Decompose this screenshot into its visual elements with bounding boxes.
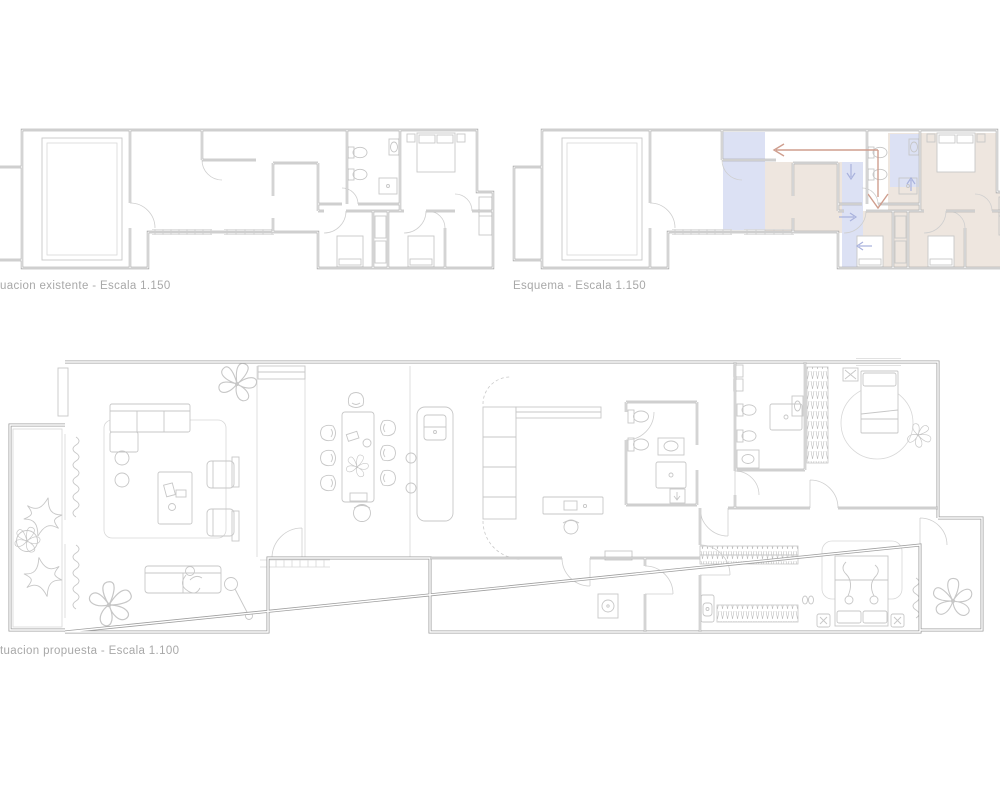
- terrace-set: [15, 437, 79, 609]
- caption-existing: uacion existente - Escala 1.150: [0, 280, 171, 292]
- drawing-sheet: uacion existente - Escala 1.150 Esquema …: [0, 0, 1000, 800]
- caption-esquema: Esquema - Escala 1.150: [513, 280, 646, 292]
- bedroom-2-set: [807, 367, 931, 463]
- bathroom-2: [734, 365, 803, 468]
- zone-tan-middle-rooms: [765, 162, 842, 233]
- wc-fixture: [701, 595, 714, 622]
- dining-table-icon: [342, 412, 374, 502]
- flow-arrow-left: [774, 144, 878, 156]
- dining-set: [321, 393, 396, 522]
- plan-existing-situation: [0, 130, 493, 268]
- curtain-squiggle: [73, 437, 79, 517]
- radiator: [232, 511, 239, 541]
- flow-arrow-down: [868, 150, 888, 208]
- star-pouf-icon: [21, 554, 65, 601]
- caption-proposed: tuacion propuesta - Escala 1.100: [0, 645, 179, 657]
- sofa-icon: [145, 566, 221, 593]
- small-sink: [792, 396, 803, 416]
- side-table: [115, 473, 129, 487]
- bidet-icon: [742, 431, 756, 441]
- hall-closet: [258, 366, 305, 379]
- double-bed-icon: [835, 556, 888, 626]
- balcony-set: [928, 574, 978, 624]
- sofa-icon: [110, 404, 190, 452]
- shower-icon: [770, 404, 802, 430]
- toilet-icon: [742, 405, 756, 415]
- desk-icon: [543, 497, 603, 534]
- zone-blue-left-corridor: [723, 132, 765, 230]
- entrance-hall: [258, 366, 305, 379]
- bar-stool: [406, 453, 416, 463]
- kitchen-island-icon: [417, 407, 453, 521]
- living-room-set: [58, 363, 257, 633]
- kitchen-cabinets: [483, 407, 601, 519]
- curtain-squiggle: [73, 545, 79, 609]
- slippers: [803, 596, 808, 604]
- side-table: [115, 451, 129, 465]
- bar-stool: [406, 483, 416, 493]
- toilet-icon: [634, 411, 649, 422]
- hatched-wardrobe-icon: [717, 605, 798, 622]
- hatched-wardrobe-icon: [807, 367, 828, 463]
- shower-icon: [656, 462, 686, 488]
- washer-icon: [598, 594, 618, 618]
- floor-plans-canvas: [0, 0, 1000, 800]
- washbasin-icon: [737, 450, 759, 468]
- small-sink: [670, 489, 685, 503]
- kitchen-set: [406, 377, 603, 559]
- coffee-table-icon: [158, 472, 192, 524]
- bidet-icon: [634, 439, 649, 450]
- double-bed-icon: [861, 371, 898, 433]
- plan-esquema: [514, 130, 1000, 268]
- armchair-icon: [207, 509, 234, 536]
- bedroom-3-set: [700, 541, 919, 627]
- armchair-icon: [207, 461, 234, 488]
- curtain-squiggle: [913, 578, 919, 618]
- laundry-set: [598, 551, 632, 618]
- pillar: [58, 368, 68, 416]
- radiator: [232, 457, 239, 487]
- plan-proposed-situation: [10, 359, 982, 634]
- star-pouf-icon: [20, 493, 65, 541]
- bathroom-1: [628, 410, 686, 503]
